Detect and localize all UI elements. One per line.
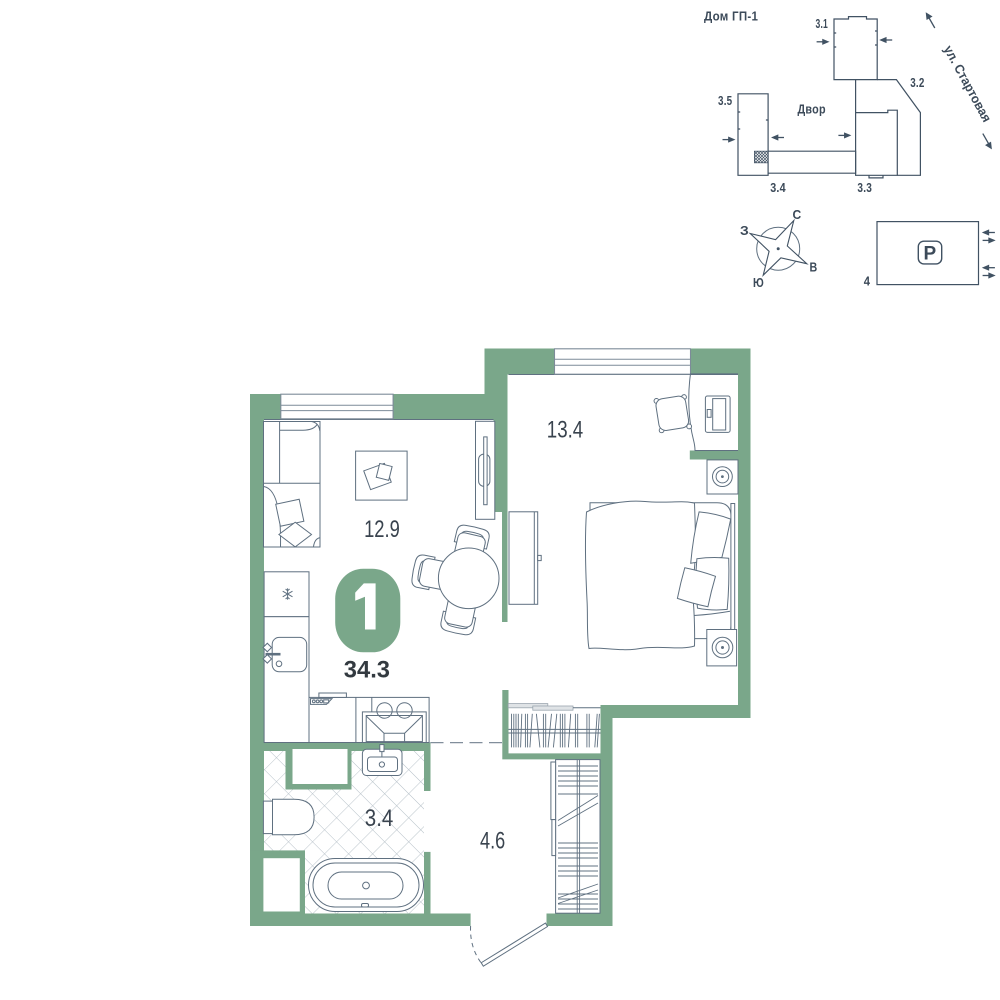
svg-text:Ю: Ю	[753, 275, 764, 290]
svg-text:В: В	[810, 260, 818, 275]
svg-text:4: 4	[864, 273, 871, 288]
svg-text:Двор: Двор	[798, 101, 826, 116]
svg-text:Дом ГП-1: Дом ГП-1	[704, 9, 758, 24]
svg-text:3.2: 3.2	[910, 75, 924, 90]
svg-text:3.4: 3.4	[770, 180, 786, 195]
svg-text:С: С	[793, 207, 802, 222]
svg-text:3.1: 3.1	[816, 16, 829, 31]
svg-text:З: З	[740, 223, 749, 238]
svg-text:4.6: 4.6	[480, 827, 505, 854]
svg-text:P: P	[924, 244, 937, 265]
svg-text:34.3: 34.3	[344, 656, 390, 683]
svg-text:13.4: 13.4	[547, 417, 583, 444]
svg-text:3.3: 3.3	[857, 180, 872, 195]
svg-text:3.5: 3.5	[718, 93, 732, 108]
svg-text:3.4: 3.4	[365, 805, 394, 832]
svg-text:12.9: 12.9	[364, 516, 400, 543]
